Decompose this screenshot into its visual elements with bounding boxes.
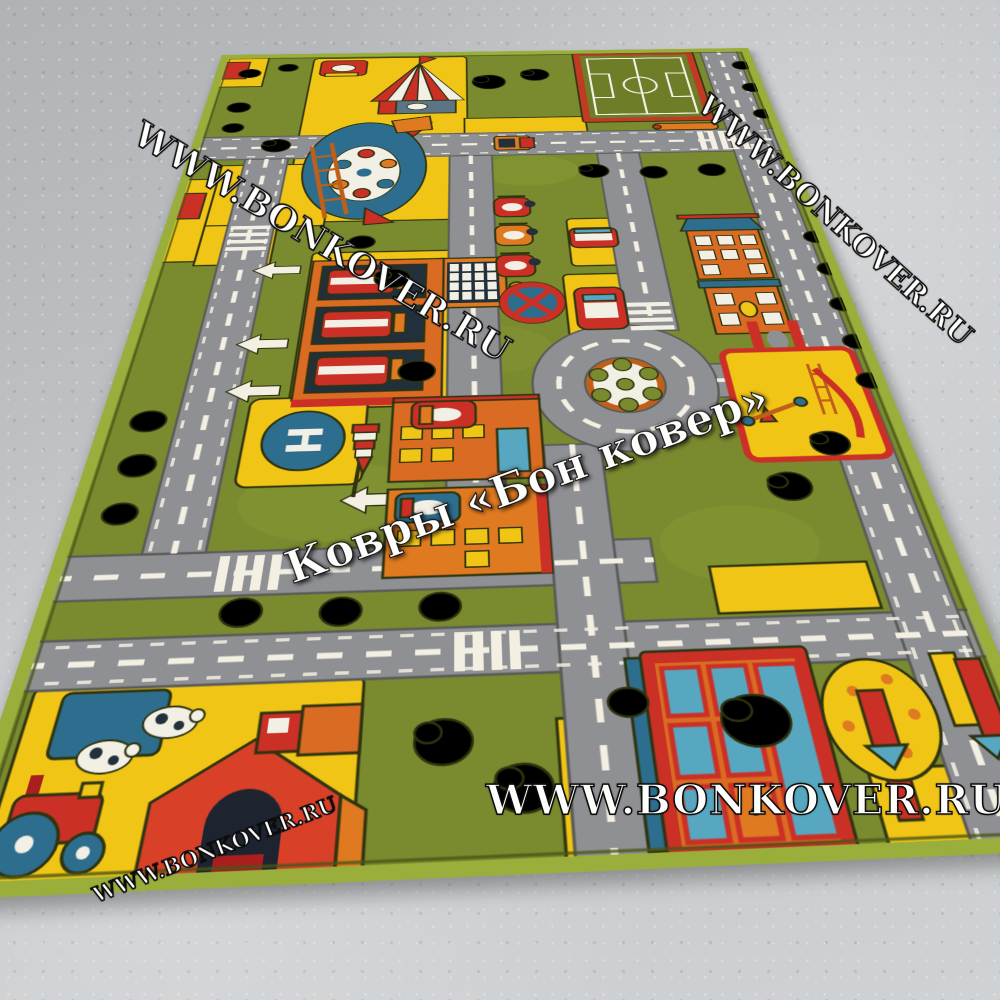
helipad-letter: H (273, 425, 333, 455)
farm-truck (255, 704, 362, 757)
car-red (573, 287, 629, 330)
truck-on-road (494, 136, 535, 150)
car-red-white (569, 227, 620, 247)
parked-car-red (411, 400, 476, 429)
watermark-bottom: WWW.BONKOVER.RU (486, 780, 1000, 821)
photo-stage: H (0, 0, 1000, 1000)
